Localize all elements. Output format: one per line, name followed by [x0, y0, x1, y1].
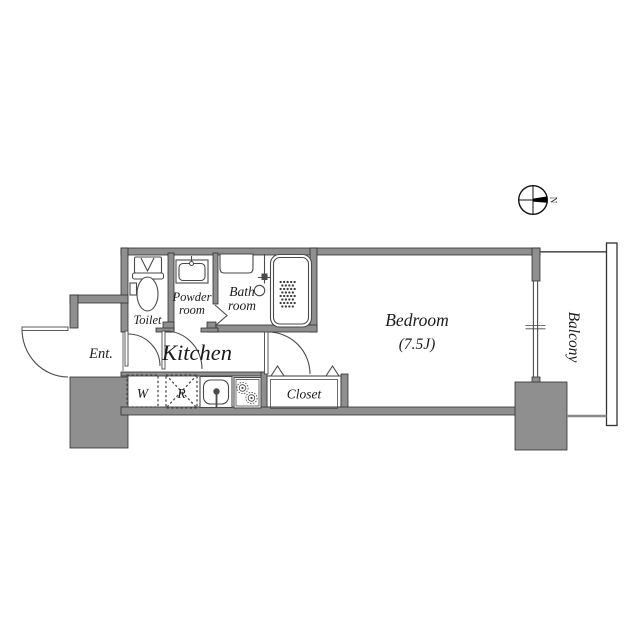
- compass-needle-icon: [533, 196, 547, 202]
- bedroom-door-leaf: [265, 332, 269, 374]
- floor-plan-drawing: N Toilet Powder room Bath room Kitchen E…: [0, 0, 639, 640]
- bedroom-door-arc: [268, 332, 310, 374]
- toilet-door-arc: [128, 334, 160, 366]
- bath-stool-icon: [254, 285, 264, 295]
- bedroom-size-label: (7.5J): [399, 336, 436, 353]
- wall-bedroom-door-side: [261, 372, 267, 408]
- bathtub-inner: [274, 258, 309, 325]
- wall-closet-right: [341, 374, 348, 408]
- sink-basin: [179, 264, 205, 281]
- bath-room-label-line2: room: [228, 298, 256, 313]
- bath-folding-door-icon: [215, 305, 227, 326]
- balcony-label: Balcony: [565, 312, 582, 363]
- entrance-label: Ent.: [88, 346, 113, 362]
- entrance-door-arc: [22, 329, 68, 377]
- balcony-pillar-block: [515, 382, 567, 450]
- toilet-paper-holder: [130, 283, 137, 295]
- powder-room-label-line2: room: [179, 303, 205, 317]
- bath-room-label-line1: Bath: [229, 284, 255, 299]
- wall-powder-right: [213, 253, 218, 304]
- closet-door-pivot-icon: [271, 366, 284, 376]
- powder-sink-icon: [176, 256, 208, 283]
- bath-counter: [220, 254, 253, 273]
- wall-window-top: [532, 248, 540, 281]
- toilet-bowl: [137, 277, 158, 311]
- wall-top: [121, 248, 540, 255]
- washing-machine-label: W: [137, 386, 150, 401]
- bedroom-label: Bedroom: [385, 310, 449, 330]
- kitchen-faucet-icon: [213, 388, 219, 394]
- sink-tap: [190, 262, 194, 266]
- entrance-pillar-block: [70, 377, 128, 448]
- bath-faucet-knob: [262, 274, 268, 281]
- balcony-railing: [607, 243, 618, 426]
- compass: N: [519, 186, 559, 215]
- entrance-door-leaf: [22, 327, 68, 331]
- closet-door-pivot-icon: [326, 366, 339, 376]
- wall-toilet-left: [121, 248, 128, 332]
- toilet-fixture-icon: [130, 257, 164, 311]
- floor-plan-page: N Toilet Powder room Bath room Kitchen E…: [0, 0, 639, 640]
- powder-room-label-line1: Powder: [172, 290, 212, 304]
- kitchen-label: Kitchen: [161, 340, 232, 365]
- toilet-label: Toilet: [133, 313, 162, 327]
- refrigerator-label: R: [176, 386, 186, 401]
- stove-box: [234, 378, 261, 409]
- wall-entrance-left: [70, 295, 78, 328]
- toilet-door-leaf: [125, 331, 128, 366]
- wall-powder-bottom: [201, 328, 218, 332]
- compass-north-label: N: [549, 197, 559, 204]
- wall-entrance-top: [70, 295, 128, 303]
- bedroom-window: [526, 281, 546, 377]
- closet-label: Closet: [287, 387, 323, 402]
